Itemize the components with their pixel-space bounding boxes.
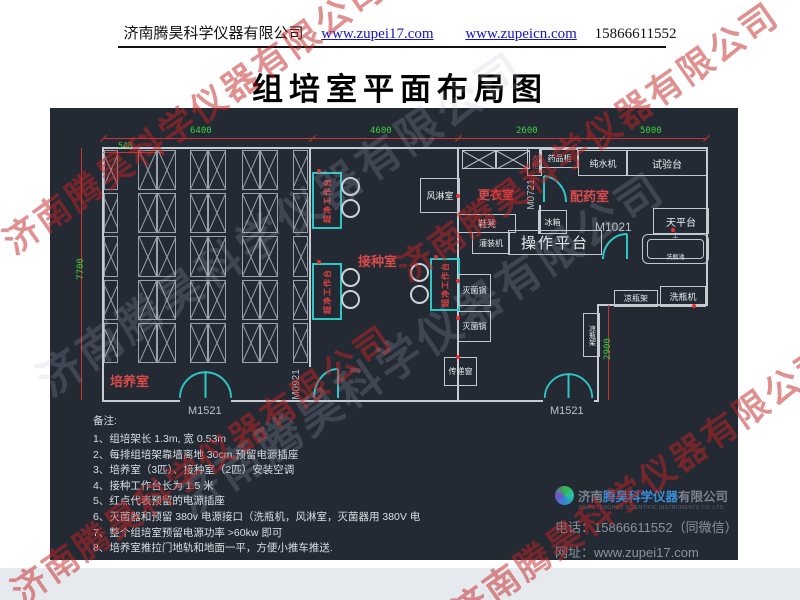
x-brace-cell xyxy=(260,150,278,190)
company-footer-en: JINAN TENGHAO SCIENTIFIC INSTRUMENTS CO.… xyxy=(578,505,738,511)
x-brace-cell xyxy=(242,193,260,233)
door-arc-m0721 xyxy=(542,174,568,204)
x-brace-cell xyxy=(138,193,157,233)
culture-rack-column xyxy=(157,150,176,363)
dim-548: 548 xyxy=(118,141,132,150)
clean-bench: 超净工作台 xyxy=(312,172,342,229)
x-brace-cell xyxy=(496,150,530,169)
note-item: 4、接种工作台长为 1.5 米 xyxy=(93,479,420,495)
dim-5000: 5000 xyxy=(640,126,662,136)
note-item: 6、灭菌器和预留 380v 电源接口（洗瓶机，风淋室，灭菌器用 380V 电 xyxy=(93,510,420,526)
wall-segment xyxy=(594,400,599,402)
power-outlet-dot xyxy=(317,169,321,173)
x-brace-cell xyxy=(242,280,260,320)
dim-7700: 7700 xyxy=(64,263,98,275)
x-brace-cell xyxy=(242,323,260,363)
note-item: 7、整个组培室预留电源功率 >60kw 即可 xyxy=(93,526,420,542)
header: 济南腾昊科学仪器有限公司 www.zupei17.com www.zupeicn… xyxy=(0,22,800,43)
footer-website[interactable]: 网址：www.zupei17.com xyxy=(555,542,738,561)
note-item: 8、培养室推拉门地轨和地面一平，方便小推车推送. xyxy=(93,541,420,557)
x-brace-cell xyxy=(260,323,278,363)
dim-6400: 6400 xyxy=(190,126,212,136)
wardrobe-cabinet: 衣柜 xyxy=(527,148,542,176)
x-brace-cell xyxy=(293,323,308,363)
culture-rack-column xyxy=(260,150,278,363)
page-title: 组培室平面布局图 xyxy=(0,64,800,109)
wall-segment xyxy=(103,147,707,149)
door-label-m0721: M0721 xyxy=(524,173,538,215)
x-brace-cell xyxy=(260,193,278,233)
power-outlet-dot xyxy=(456,355,460,359)
power-outlet-dot xyxy=(434,255,438,259)
x-brace-cell xyxy=(208,150,226,190)
company-name: 济南腾昊科学仪器有限公司 xyxy=(123,26,303,42)
x-brace-cell xyxy=(104,323,118,363)
room-label-culture: 培养室 xyxy=(110,371,149,390)
note-item: 5、红点代表预留的电源插座 xyxy=(93,494,420,510)
dim-tick xyxy=(703,135,710,142)
stool xyxy=(341,290,360,309)
test-bench: 试验台 xyxy=(626,150,708,176)
bottle-washer: 洗瓶机 xyxy=(660,286,706,307)
culture-rack-column xyxy=(138,150,157,363)
x-brace-cell xyxy=(104,150,118,190)
stool xyxy=(410,263,429,282)
wall-segment xyxy=(102,400,180,402)
x-brace-cell xyxy=(157,193,176,233)
x-brace-cell xyxy=(242,236,260,276)
company-footer: 济南腾昊科学仪器有限公司 JINAN TENGHAO SCIENTIFIC IN… xyxy=(555,486,738,561)
brand-prefix: 济南 xyxy=(578,490,603,504)
dim-2600: 2600 xyxy=(516,126,538,136)
x-brace-cell xyxy=(242,150,260,190)
x-brace-cell xyxy=(190,193,208,233)
page: 济南腾昊科学仪器有限公司 www.zupei17.com www.zupeicn… xyxy=(0,0,800,600)
brand-suffix: 有限公司 xyxy=(678,490,728,504)
air-shower-room: 风淋室 xyxy=(420,178,460,213)
x-brace-cell xyxy=(190,280,208,320)
faucet-icon: ⊥ xyxy=(672,232,679,240)
sterilizer: 灭菌锅 xyxy=(458,311,491,342)
x-brace-cell xyxy=(462,150,496,169)
x-brace-cell xyxy=(260,280,278,320)
work-platform: 操作平台 xyxy=(508,230,602,255)
medicine-cabinet: 药品柜 xyxy=(541,149,578,168)
x-brace-cell xyxy=(208,236,226,276)
website-link-2[interactable]: www.zupeicn.com xyxy=(465,26,577,42)
pass-window: 传递窗 xyxy=(444,357,477,386)
culture-rack-column xyxy=(242,150,260,363)
sink-label: 洗瓶池 xyxy=(643,252,708,261)
wall-culture-inoculation xyxy=(309,147,311,367)
note-item: 2、每排组培架靠墙离地 30cm 预留电源插座 xyxy=(93,448,420,464)
dim-4600: 4600 xyxy=(370,126,392,136)
dim-2900: 2900 xyxy=(597,343,619,355)
note-item: 3、培养室（3匹）、接种室（2匹）安装空调 xyxy=(93,463,420,479)
room-label-changing: 更衣室 xyxy=(478,186,514,203)
filling-machine: 灌装机 xyxy=(472,232,510,254)
stool xyxy=(341,177,360,196)
room-label-inoculation: 接种室 xyxy=(358,251,397,270)
header-rule xyxy=(118,46,666,48)
stool xyxy=(410,285,429,304)
x-brace-cell xyxy=(293,280,308,320)
notes-title: 备注: xyxy=(93,413,420,428)
stool xyxy=(341,199,360,218)
power-outlet-dot xyxy=(671,228,675,232)
double-door-m1521-right xyxy=(543,372,594,400)
company-logo-icon xyxy=(555,486,574,505)
website-link-1[interactable]: www.zupei17.com xyxy=(321,26,433,42)
x-brace-cell xyxy=(190,236,208,276)
x-brace-cell xyxy=(157,150,176,190)
x-brace-cell xyxy=(208,323,226,363)
x-brace-cell xyxy=(138,150,157,190)
x-brace-cell xyxy=(208,193,226,233)
culture-rack-column xyxy=(208,150,226,363)
door-arc-m0921 xyxy=(312,367,340,400)
door-label-m1521-right: M1521 xyxy=(550,405,584,417)
power-outlet-dot xyxy=(456,194,460,198)
x-brace-cell xyxy=(293,236,308,276)
culture-rack-column xyxy=(190,150,208,363)
x-brace-cell xyxy=(104,280,118,320)
x-brace-cell xyxy=(104,236,118,276)
sterilizer: 灭菌锅 xyxy=(458,274,491,306)
power-outlet-dot xyxy=(456,279,460,283)
clean-bench: 超净工作台 xyxy=(312,263,342,320)
footer-phone: 电话：15866611552（同微信） xyxy=(555,517,738,536)
x-brace-cell xyxy=(190,150,208,190)
dimension-line-top xyxy=(103,138,707,139)
bottom-strip xyxy=(0,568,800,600)
x-brace-cell xyxy=(293,150,308,190)
x-brace-cell xyxy=(157,323,176,363)
note-item: 1、组培架长 1.3m, 宽 0.53m xyxy=(93,432,420,448)
double-door-m1521-left xyxy=(178,370,233,400)
door-label-m0921: M0921 xyxy=(289,361,303,408)
door-arc-m1021 xyxy=(601,232,629,261)
locker-cabinet xyxy=(462,150,530,169)
room-label-pharmacy: 配药室 xyxy=(570,186,609,205)
x-brace-cell xyxy=(157,236,176,276)
wall-segment xyxy=(231,400,543,402)
clean-bench: 超净工作台 xyxy=(430,258,460,311)
water-purifier: 纯水机 xyxy=(578,150,628,176)
power-outlet-dot xyxy=(456,316,460,320)
x-brace-cell xyxy=(293,193,308,233)
floor-plan-panel: 6400 4600 2600 5000 548 7700 2900 培养室 接种… xyxy=(50,108,738,560)
x-brace-cell xyxy=(138,280,157,320)
notes-block: 备注: 1、组培架长 1.3m, 宽 0.53m 2、每排组培架靠墙离地 30c… xyxy=(93,413,420,557)
power-outlet-dot xyxy=(692,304,696,308)
brand-highlight: 腾昊科学仪器 xyxy=(603,490,678,504)
x-brace-cell xyxy=(208,280,226,320)
x-brace-cell xyxy=(157,280,176,320)
bottle-rack: 凉瓶架 xyxy=(614,290,658,307)
power-outlet-dot xyxy=(317,260,321,264)
x-brace-cell xyxy=(260,236,278,276)
culture-rack-column xyxy=(104,150,118,363)
stool xyxy=(341,268,360,287)
phone-number: 15866611552 xyxy=(595,26,677,42)
balance-table: 天平台 xyxy=(653,208,709,234)
bottle-sink: ⊥ 洗瓶池 xyxy=(642,234,709,264)
x-brace-cell xyxy=(190,323,208,363)
x-brace-cell xyxy=(138,323,157,363)
x-brace-cell xyxy=(138,236,157,276)
company-footer-name: 济南腾昊科学仪器有限公司 xyxy=(578,486,728,505)
x-brace-cell xyxy=(104,193,118,233)
bottle-rack-vertical: 凉瓶架 xyxy=(583,313,600,357)
culture-rack-column xyxy=(293,150,308,363)
